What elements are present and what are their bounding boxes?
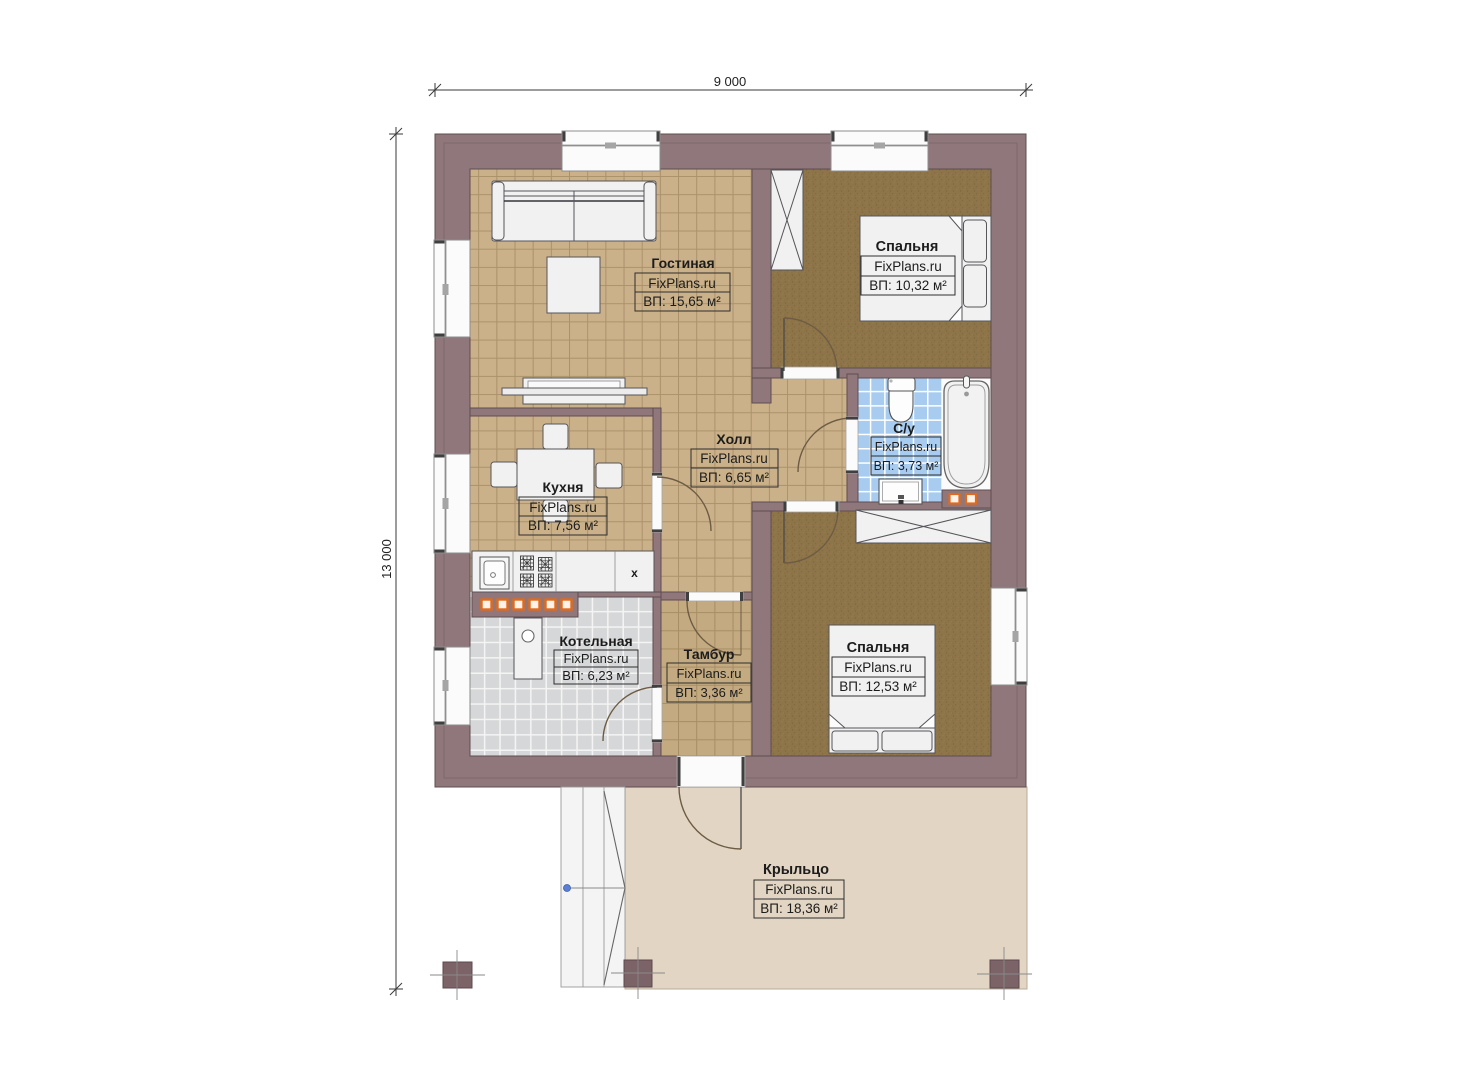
svg-text:FixPlans.ru: FixPlans.ru bbox=[700, 451, 768, 466]
svg-text:ВП: 10,32 м²: ВП: 10,32 м² bbox=[869, 278, 947, 293]
svg-text:ВП: 3,36 м²: ВП: 3,36 м² bbox=[675, 685, 743, 700]
svg-text:ВП: 6,23 м²: ВП: 6,23 м² bbox=[562, 668, 630, 683]
svg-text:Гостиная: Гостиная bbox=[651, 255, 714, 271]
svg-text:Тамбур: Тамбур bbox=[684, 646, 735, 662]
svg-text:С/у: С/у bbox=[893, 420, 915, 436]
svg-text:ВП: 15,65 м²: ВП: 15,65 м² bbox=[643, 294, 721, 309]
svg-text:ВП: 12,53 м²: ВП: 12,53 м² bbox=[839, 679, 917, 694]
svg-text:x: x bbox=[631, 566, 638, 580]
svg-text:ВП: 6,65 м²: ВП: 6,65 м² bbox=[699, 470, 770, 485]
svg-text:FixPlans.ru: FixPlans.ru bbox=[529, 500, 597, 515]
svg-text:FixPlans.ru: FixPlans.ru bbox=[676, 666, 741, 681]
svg-text:13 000: 13 000 bbox=[379, 539, 394, 579]
svg-text:FixPlans.ru: FixPlans.ru bbox=[648, 276, 716, 291]
svg-text:FixPlans.ru: FixPlans.ru bbox=[874, 259, 942, 274]
svg-text:FixPlans.ru: FixPlans.ru bbox=[875, 440, 938, 454]
svg-text:Холл: Холл bbox=[716, 431, 751, 447]
svg-text:ВП: 7,56 м²: ВП: 7,56 м² bbox=[528, 518, 599, 533]
svg-text:9 000: 9 000 bbox=[714, 74, 747, 89]
svg-text:Кухня: Кухня bbox=[543, 479, 584, 495]
svg-text:ВП: 3,73 м²: ВП: 3,73 м² bbox=[874, 459, 939, 473]
svg-text:FixPlans.ru: FixPlans.ru bbox=[844, 660, 912, 675]
svg-text:Спальня: Спальня bbox=[876, 239, 939, 255]
svg-text:Крыльцо: Крыльцо bbox=[763, 862, 829, 878]
svg-text:FixPlans.ru: FixPlans.ru bbox=[765, 882, 833, 897]
svg-text:FixPlans.ru: FixPlans.ru bbox=[563, 651, 628, 666]
svg-text:Спальня: Спальня bbox=[847, 640, 910, 656]
svg-text:Котельная: Котельная bbox=[559, 633, 632, 649]
svg-text:ВП: 18,36 м²: ВП: 18,36 м² bbox=[760, 901, 838, 916]
